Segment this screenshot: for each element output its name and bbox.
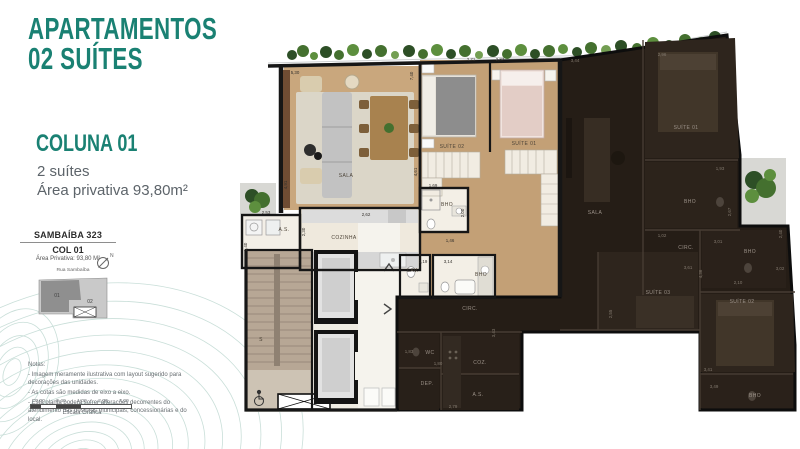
- mini-unit01-label: 01: [54, 293, 60, 299]
- svg-text:4,36: 4,36: [698, 269, 703, 278]
- svg-text:3,01: 3,01: [714, 239, 723, 244]
- svg-text:1,69: 1,69: [429, 183, 438, 188]
- unit-area: Área privativa 93,80m²: [37, 182, 188, 201]
- svg-text:2,00: 2,00: [460, 208, 465, 217]
- svg-text:7,40: 7,40: [409, 71, 414, 80]
- unit-spec: 2 suítes Área privativa 93,80m²: [37, 163, 188, 201]
- svg-text:2,55: 2,55: [608, 309, 613, 318]
- room-label-dark-bho3: BHO: [749, 393, 761, 399]
- note-line: - Imagem meramente ilustrativa com layou…: [28, 371, 190, 387]
- scale-tick: 1,00: [77, 398, 87, 403]
- room-label-bho-suite01: BHO: [475, 272, 487, 278]
- keyplan-street: Rua Sambaíba: [37, 267, 109, 272]
- room-label-dark-dep: DEP.: [421, 381, 434, 387]
- room-label-dark-circ2: CIRC.: [462, 306, 478, 312]
- svg-text:2,87: 2,87: [496, 57, 505, 62]
- compass-north-label: N: [110, 253, 114, 259]
- svg-text:1,83: 1,83: [405, 349, 414, 354]
- svg-text:3,61: 3,61: [684, 265, 693, 270]
- title-line2: 02 SUÍTES: [28, 44, 143, 74]
- room-label-dark-suite01: SUÍTE 01: [674, 124, 699, 131]
- svg-text:3,14: 3,14: [444, 259, 453, 264]
- sala-furniture: [296, 75, 419, 204]
- svg-text:1,19: 1,19: [419, 259, 428, 264]
- room-label-as: A.S.: [278, 227, 289, 233]
- room-label-cozinha: COZINHA: [331, 235, 357, 241]
- room-label-dark-as: A.S.: [472, 392, 483, 398]
- svg-text:3,41: 3,41: [704, 367, 713, 372]
- svg-text:3,44: 3,44: [571, 58, 580, 63]
- keyplan-mini-map: 01 02: [33, 274, 113, 324]
- room-label-dark-wc: WC: [425, 350, 434, 356]
- note-line: - As cotas são medidas de eixo a eixo.: [28, 389, 190, 397]
- keyplan-building: SAMBAÍBA 323: [20, 230, 116, 240]
- room-label-lav: LAV.: [407, 268, 419, 274]
- room-label-dark-suite02: SUÍTE 02: [730, 298, 755, 305]
- room-label-sala: SALA: [339, 173, 354, 179]
- page-title: APARTAMENTOS 02 SUÍTES: [28, 14, 291, 75]
- room-label-dark-suite03: SUÍTE 03: [646, 289, 671, 296]
- scale-tick: 0,40: [56, 398, 66, 403]
- room-label-dark-coz: COZ.: [473, 360, 487, 366]
- svg-text:4,91: 4,91: [283, 180, 288, 189]
- svg-text:2,30: 2,30: [301, 227, 306, 236]
- room-label-dark-bho2: BHO: [744, 249, 756, 255]
- room-label-dark-bho1: BHO: [684, 199, 696, 205]
- svg-text:2,71: 2,71: [467, 57, 476, 62]
- side-planter-left: [240, 183, 276, 214]
- svg-text:3,43: 3,43: [491, 328, 496, 337]
- scale-bar: [30, 404, 132, 409]
- keyplan-divider: [20, 242, 116, 243]
- unit-suites: 2 suítes: [37, 163, 188, 182]
- side-planter-right: [738, 158, 786, 228]
- title-line1: APARTAMENTOS: [28, 14, 217, 44]
- svg-text:2,79: 2,79: [449, 404, 458, 409]
- svg-text:3,49: 3,49: [710, 384, 719, 389]
- notes-title: Notas:: [28, 361, 190, 369]
- mini-unit02-label: 02: [87, 299, 93, 305]
- scale-tick: 4,00: [119, 398, 129, 403]
- svg-text:2,53: 2,53: [262, 210, 271, 215]
- svg-text:1,40: 1,40: [243, 242, 248, 251]
- room-label-stairs: S: [259, 337, 263, 343]
- room-label-suite02: SUÍTE 02: [440, 143, 465, 150]
- room-label-dark-circ1: CIRC.: [678, 245, 694, 251]
- column-title: COLUNA 01: [36, 130, 171, 158]
- room-label-dark-sala: SALA: [588, 210, 603, 216]
- svg-text:2,40: 2,40: [778, 229, 783, 238]
- svg-text:2,67: 2,67: [727, 207, 732, 216]
- svg-text:4,61: 4,61: [413, 167, 418, 176]
- svg-text:2,10: 2,10: [734, 280, 743, 285]
- scale-caption: Escala Gráfica: [30, 410, 134, 416]
- scale-tick: 0,00: [35, 398, 45, 403]
- svg-text:1,80: 1,80: [434, 361, 443, 366]
- graphic-scale: 0,00 0,40 1,00 2,00 4,00 Escala Gráfica: [30, 398, 134, 416]
- svg-text:1,46: 1,46: [446, 238, 455, 243]
- brochure-page: SALA COZINHA A.S. SUÍTE 02 SUÍTE 01 BHO …: [0, 0, 800, 449]
- suite02-furniture: [422, 64, 480, 196]
- svg-text:1,93: 1,93: [716, 166, 725, 171]
- svg-text:2,96: 2,96: [658, 52, 667, 57]
- svg-text:5,30: 5,30: [291, 70, 300, 75]
- scale-tick: 2,00: [98, 398, 108, 403]
- room-label-suite01: SUÍTE 01: [512, 140, 537, 147]
- svg-text:2,62: 2,62: [362, 212, 371, 217]
- svg-text:3,02: 3,02: [776, 266, 785, 271]
- svg-text:1,02: 1,02: [658, 233, 667, 238]
- room-label-bho-suite02: BHO: [441, 202, 453, 208]
